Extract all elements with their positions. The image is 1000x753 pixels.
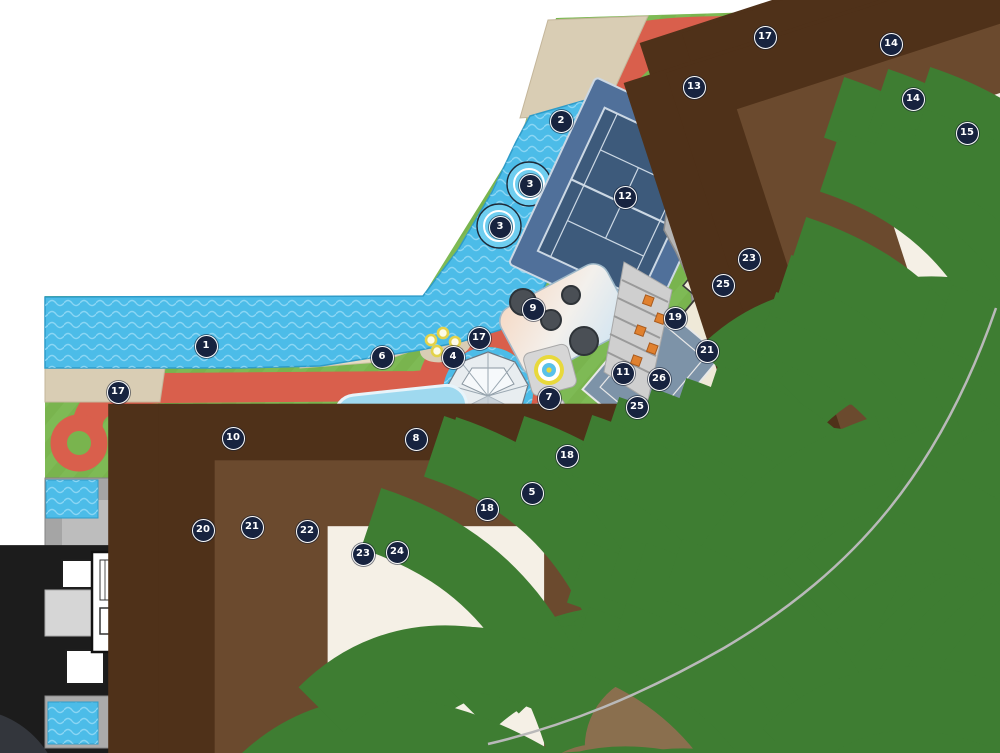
amenity-marker-number: 21 [700,346,714,356]
amenity-marker-number: 10 [226,433,240,443]
amenity-marker[interactable]: 1 [195,335,218,358]
amenity-marker[interactable]: 17 [754,26,777,49]
amenity-marker-number: 8 [413,434,420,444]
amenity-marker[interactable]: 21 [696,340,719,363]
amenity-marker[interactable]: 17 [468,327,491,350]
amenity-marker-number: 7 [546,393,553,403]
amenity-marker[interactable]: 21 [241,516,264,539]
amenity-marker[interactable]: 14 [880,33,903,56]
amenity-marker-number: 13 [687,82,701,92]
amenity-marker-number: 22 [300,526,314,536]
amenity-marker[interactable]: 26 [648,368,671,391]
amenity-marker-number: 17 [111,387,125,397]
amenity-marker-number: 18 [560,451,574,461]
amenity-marker[interactable]: 10 [222,427,245,450]
amenity-marker-number: 14 [884,39,898,49]
amenity-marker-number: 19 [668,313,682,323]
amenity-marker[interactable]: 9 [522,298,545,321]
amenity-marker-number: 5 [529,488,536,498]
amenity-marker-number: 20 [196,525,210,535]
amenity-marker-number: 23 [356,549,370,559]
amenity-marker[interactable]: 24 [386,541,409,564]
amenity-marker-number: 2 [558,116,565,126]
amenity-marker[interactable]: 18 [476,498,499,521]
amenity-marker[interactable]: 23 [738,248,761,271]
amenity-marker-number: 17 [758,32,772,42]
amenity-marker[interactable]: 3 [519,174,542,197]
amenity-marker-number: 26 [652,374,666,384]
amenity-marker-number: 4 [450,352,457,362]
amenity-marker[interactable]: 2 [550,110,573,133]
track-loop-island [67,431,91,455]
amenity-marker[interactable]: 23 [352,543,375,566]
amenity-marker[interactable]: 5 [521,482,544,505]
amenity-marker-number: 23 [742,254,756,264]
amenity-marker-number: 9 [530,304,537,314]
amenity-marker-number: 24 [390,547,404,557]
amenity-marker-number: 15 [960,128,974,138]
resort-site-plan: 1 2 3 3 4 5 6 7 8 9 10 11 12 13 14 14 15… [0,0,1000,753]
amenity-marker-number: 6 [379,352,386,362]
amenity-marker-number: 21 [245,522,259,532]
amenity-marker[interactable]: 13 [683,76,706,99]
amenity-marker-number: 11 [616,368,630,378]
amenity-marker[interactable]: 11 [612,362,635,385]
amenity-marker[interactable]: 15 [956,122,979,145]
amenity-marker-number: 12 [618,192,632,202]
amenity-marker-number: 3 [497,222,504,232]
amenity-marker[interactable]: 17 [107,381,130,404]
amenity-marker[interactable]: 19 [664,307,687,330]
amenity-marker[interactable]: 20 [192,519,215,542]
west-lounge-deck [45,368,165,402]
amenity-marker[interactable]: 7 [538,387,561,410]
amenity-marker[interactable]: 6 [371,346,394,369]
amenity-marker[interactable]: 12 [614,186,637,209]
amenity-marker[interactable]: 22 [296,520,319,543]
amenity-marker-number: 3 [527,180,534,190]
amenity-marker[interactable]: 14 [902,88,925,111]
site-plan-canvas [0,0,1000,753]
amenity-marker-number: 25 [630,402,644,412]
amenity-marker-number: 14 [906,94,920,104]
amenity-marker[interactable]: 3 [489,216,512,239]
amenity-marker-number: 25 [716,280,730,290]
amenity-marker[interactable]: 25 [626,396,649,419]
amenity-marker-number: 1 [203,341,210,351]
amenity-marker[interactable]: 18 [556,445,579,468]
amenity-marker-number: 17 [472,333,486,343]
amenity-marker[interactable]: 4 [442,346,465,369]
amenity-marker[interactable]: 25 [712,274,735,297]
amenity-marker-number: 18 [480,504,494,514]
amenity-marker[interactable]: 8 [405,428,428,451]
